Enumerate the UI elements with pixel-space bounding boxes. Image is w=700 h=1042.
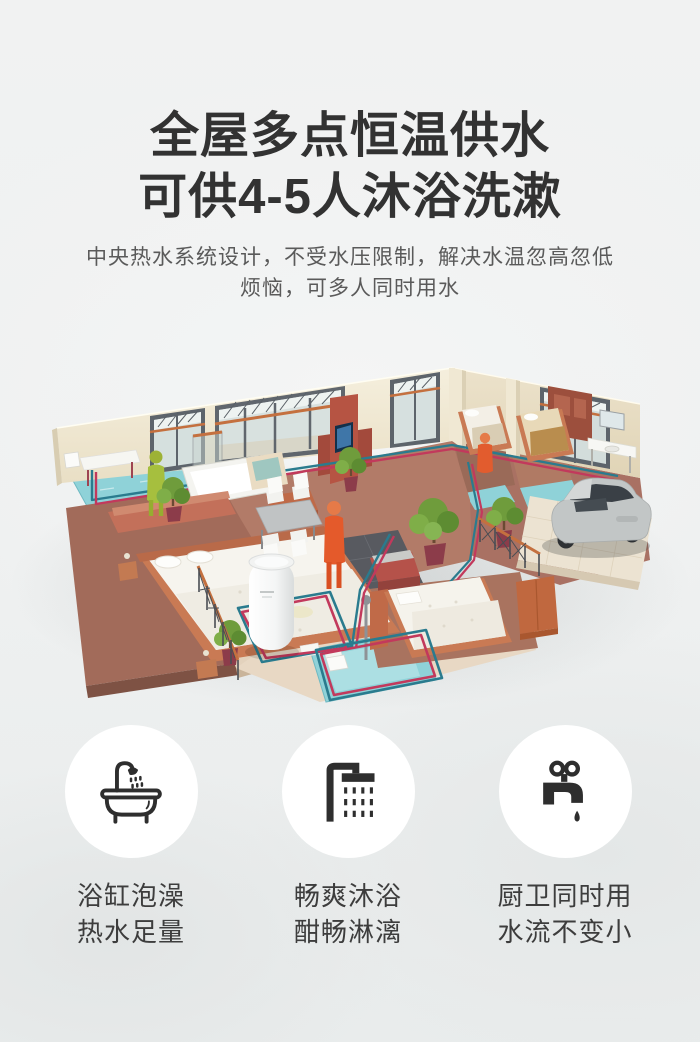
header: 全屋多点恒温供水 可供4-5人沐浴洗漱 中央热水系统设计，不受水压限制，解决水温… <box>0 106 700 228</box>
subtitle-line-1: 中央热水系统设计，不受水压限制，解决水温忽高忽低 <box>0 242 700 273</box>
house-illustration <box>0 350 700 722</box>
page-title: 全屋多点恒温供水 可供4-5人沐浴洗漱 <box>0 106 700 228</box>
page-subtitle: 中央热水系统设计，不受水压限制，解决水温忽高忽低 烦恼，可多人同时用水 <box>0 242 700 304</box>
subtitle-line-2: 烦恼，可多人同时用水 <box>0 273 700 304</box>
title-line-2: 可供4-5人沐浴洗漱 <box>0 167 700 228</box>
title-line-1: 全屋多点恒温供水 <box>0 106 700 167</box>
page: 全屋多点恒温供水 可供4-5人沐浴洗漱 中央热水系统设计，不受水压限制，解决水温… <box>0 0 700 1042</box>
